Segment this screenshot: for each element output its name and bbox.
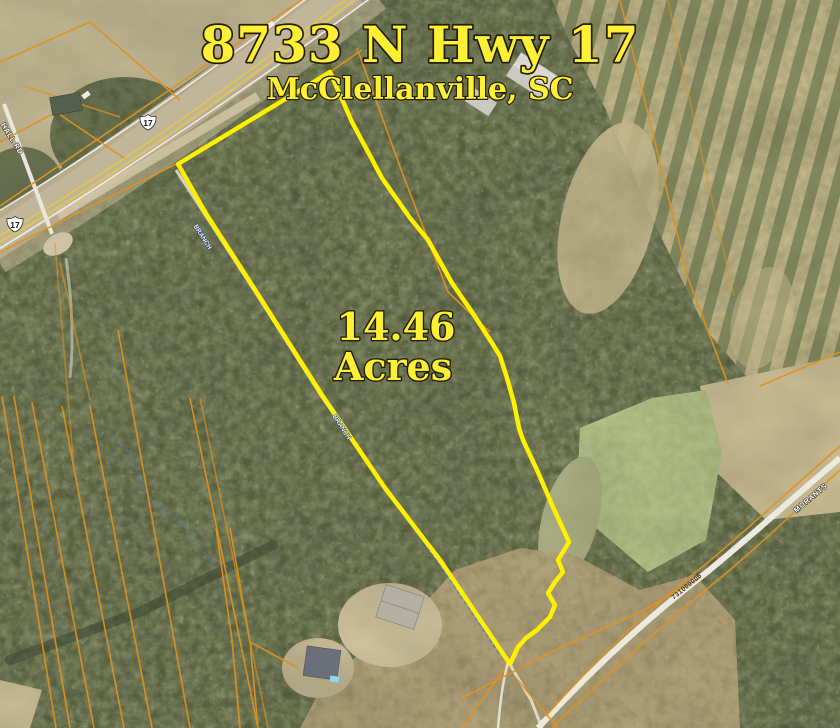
swimming-pool (330, 675, 340, 682)
shield-number: 17 (143, 118, 153, 128)
acreage-value-label: 14.46 (337, 304, 456, 349)
property-address-title: 8733 N Hwy 17 (200, 15, 639, 74)
property-city-label: McClellanville, SC (266, 72, 573, 107)
property-map: 17 17 HALL RD BRANCH BRANCH MORANTS 7310… (0, 0, 840, 728)
shield-number: 17 (10, 220, 20, 230)
acreage-unit-label: Acres (333, 344, 452, 389)
aerial-map: 17 17 HALL RD BRANCH BRANCH MORANTS 7310… (0, 0, 840, 728)
building-house-southwest (303, 646, 341, 680)
